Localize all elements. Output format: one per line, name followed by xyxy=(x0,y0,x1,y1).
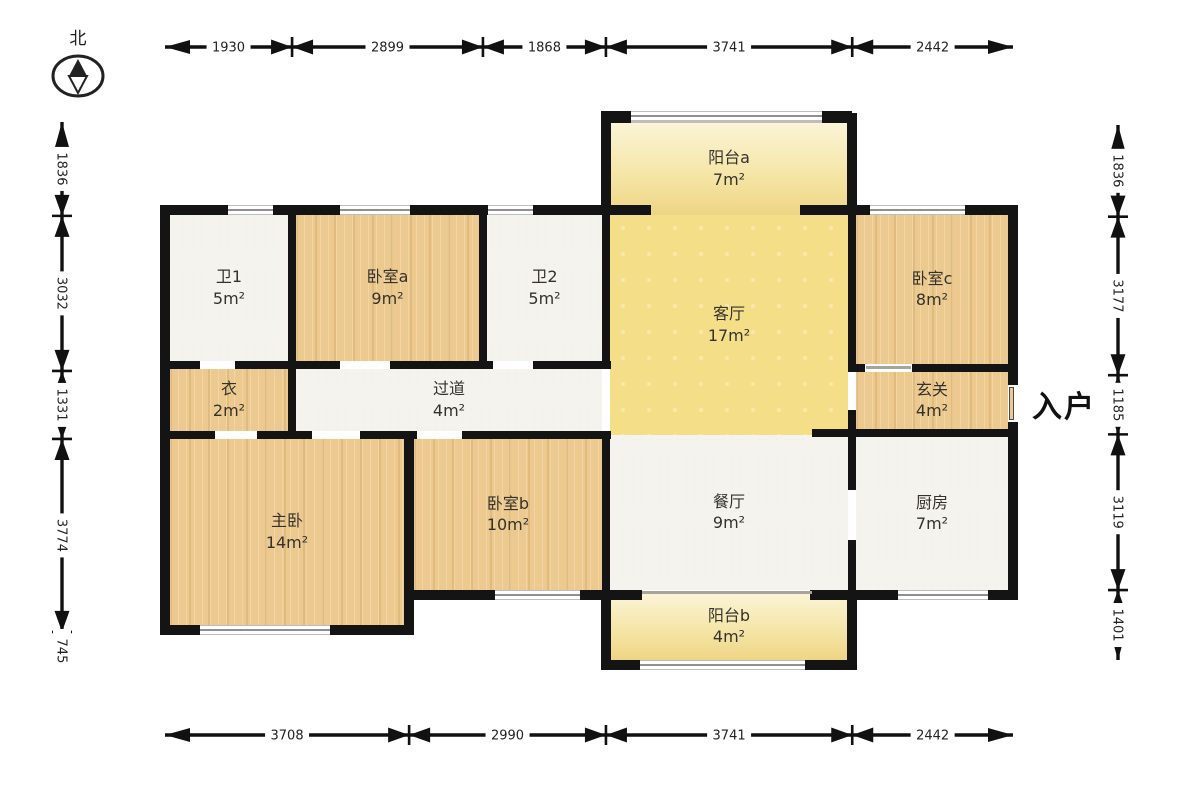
room-balcony-a: 阳台a7m² xyxy=(611,123,847,215)
wall xyxy=(601,111,631,123)
wall xyxy=(160,361,200,369)
room-name: 玄关 xyxy=(916,381,948,399)
dim-label: 1836 xyxy=(1110,154,1125,187)
compass: 北 xyxy=(43,24,115,112)
dim-label-bg xyxy=(486,726,530,744)
wall xyxy=(848,364,865,372)
dim-arrow xyxy=(165,40,190,54)
dim-bowtie xyxy=(852,40,873,55)
window xyxy=(870,205,965,215)
dim-bowtie xyxy=(606,728,627,743)
dim-bowtie xyxy=(55,371,70,392)
wall xyxy=(800,205,842,215)
dim-label-bg xyxy=(911,726,955,744)
dim-label: 1331 xyxy=(54,388,69,421)
dim-bowtie xyxy=(55,418,70,439)
room-name: 衣 xyxy=(221,380,237,398)
dim-label-bg xyxy=(366,38,410,56)
wall xyxy=(812,429,1018,437)
dim-label: 745 xyxy=(54,639,69,664)
window xyxy=(340,205,410,215)
dim-label: 2442 xyxy=(916,729,949,744)
dim-label-bg xyxy=(207,38,251,56)
dim-bowtie xyxy=(1111,590,1126,611)
dim-bowtie xyxy=(1111,375,1126,396)
dim-label: 1930 xyxy=(212,41,245,56)
dim-arrow xyxy=(988,40,1013,54)
room-name: 卫2 xyxy=(531,268,557,286)
dim-bowtie xyxy=(55,611,70,632)
window xyxy=(631,111,822,123)
dim-label-bg xyxy=(1109,274,1127,318)
dim-label-bg xyxy=(53,147,71,191)
entry-label: 入户 xyxy=(1032,382,1096,426)
dim-label-bg xyxy=(1109,149,1127,193)
dim-bowtie xyxy=(483,40,504,55)
dim-arrow xyxy=(1111,635,1125,660)
dim-bowtie xyxy=(1111,196,1126,217)
room-area: 10m² xyxy=(487,516,529,534)
dim-label: 3032 xyxy=(54,277,69,310)
dim-label: 1185 xyxy=(1110,388,1125,421)
dim-arrow xyxy=(55,645,69,670)
room-area: 4m² xyxy=(713,628,745,646)
room-name: 厨房 xyxy=(916,494,948,512)
dim-bowtie xyxy=(55,216,70,237)
wall xyxy=(602,590,642,600)
dim-label: 3741 xyxy=(713,41,746,56)
wall xyxy=(288,215,296,369)
wall xyxy=(1008,205,1018,385)
wall xyxy=(533,361,611,369)
dim-arrow xyxy=(988,728,1013,742)
wall xyxy=(912,364,1018,372)
room-closet: 衣2m² xyxy=(170,369,288,431)
room-name: 客厅 xyxy=(713,305,745,323)
room-name: 餐厅 xyxy=(713,493,745,511)
room-bedroom-b: 卧室b10m² xyxy=(414,439,602,590)
wall xyxy=(602,435,610,595)
wall xyxy=(390,361,493,369)
room-area: 9m² xyxy=(371,290,403,308)
dim-label-bg xyxy=(1109,490,1127,534)
wall xyxy=(479,215,487,369)
wall xyxy=(160,431,215,439)
dim-bowtie xyxy=(585,40,606,55)
dim-bowtie xyxy=(271,40,292,55)
floor-plan: 北 阳台a7m²卫15m²卧室a9m²卫25m²客厅17m²卧室c8m²衣2m²… xyxy=(0,0,1177,785)
window xyxy=(898,590,988,600)
dim-bowtie xyxy=(1111,569,1126,590)
room-name: 过道 xyxy=(433,380,465,398)
dim-label-bg xyxy=(707,38,751,56)
room-name: 卧室b xyxy=(487,495,529,513)
window xyxy=(488,205,533,215)
room-dining-room: 餐厅9m² xyxy=(610,435,848,590)
window xyxy=(228,205,273,215)
dim-label-bg xyxy=(911,38,955,56)
room-master-bedroom: 主卧14m² xyxy=(170,439,404,625)
room-bedroom-a: 卧室a9m² xyxy=(296,215,479,361)
dim-label-bg xyxy=(53,513,71,557)
dim-arrow xyxy=(1111,125,1125,150)
dim-label: 3708 xyxy=(271,729,304,744)
dim-bowtie xyxy=(606,40,627,55)
dim-bowtie xyxy=(388,728,409,743)
dim-label: 3119 xyxy=(1110,496,1125,529)
dim-label: 3774 xyxy=(54,519,69,552)
room-area: 4m² xyxy=(433,402,465,420)
room-area: 9m² xyxy=(713,514,745,532)
room-area: 8m² xyxy=(916,291,948,309)
wall xyxy=(602,215,610,368)
window xyxy=(495,590,580,600)
room-area: 7m² xyxy=(713,171,745,189)
compass-label: 北 xyxy=(70,29,87,49)
dim-arrow xyxy=(55,122,69,147)
wall xyxy=(404,431,414,595)
wall xyxy=(160,205,170,635)
dim-label: 2899 xyxy=(371,41,404,56)
dim-bowtie xyxy=(55,195,70,216)
dim-bowtie xyxy=(831,40,852,55)
dim-bowtie xyxy=(55,439,70,460)
dim-arrow xyxy=(165,728,190,742)
room-area: 14m² xyxy=(266,534,308,552)
dim-label: 2990 xyxy=(491,729,524,744)
entry-door-leaf xyxy=(1009,387,1014,420)
window xyxy=(640,660,805,670)
dim-bowtie xyxy=(292,40,313,55)
wall xyxy=(847,113,857,215)
wall xyxy=(848,410,856,490)
room-area: 5m² xyxy=(528,290,560,308)
room-name: 卧室c xyxy=(912,270,953,288)
wall xyxy=(847,590,857,670)
dim-bowtie xyxy=(831,728,852,743)
dim-label-bg xyxy=(1109,603,1127,647)
dim-label-bg xyxy=(53,383,71,427)
room-area: 17m² xyxy=(708,327,750,345)
room-bath-1: 卫15m² xyxy=(170,215,288,361)
dim-label-bg xyxy=(522,38,566,56)
dim-label: 3741 xyxy=(713,729,746,744)
window xyxy=(200,625,330,635)
dim-label-bg xyxy=(265,726,309,744)
sliding-door xyxy=(642,591,812,594)
room-balcony-b: 阳台b4m² xyxy=(611,593,847,660)
sliding-door xyxy=(866,366,911,369)
room-area: 7m² xyxy=(916,515,948,533)
wall xyxy=(235,361,340,369)
dim-bowtie xyxy=(852,728,873,743)
wall xyxy=(288,369,296,431)
room-bath-2: 卫25m² xyxy=(487,215,602,361)
wall xyxy=(822,111,852,123)
dim-label: 1401 xyxy=(1110,608,1125,641)
room-kitchen: 厨房7m² xyxy=(856,437,1008,590)
room-area: 4m² xyxy=(916,402,948,420)
room-name: 主卧 xyxy=(271,512,303,530)
dim-bowtie xyxy=(1111,413,1126,434)
wall xyxy=(810,590,852,600)
wall xyxy=(611,205,651,215)
dim-bowtie xyxy=(55,632,70,653)
dim-bowtie xyxy=(1111,434,1126,455)
room-name: 卧室a xyxy=(367,268,409,286)
room-name: 阳台b xyxy=(708,607,750,625)
dim-label: 3177 xyxy=(1110,279,1125,312)
room-area: 2m² xyxy=(213,402,245,420)
dim-bowtie xyxy=(1111,217,1126,238)
wall xyxy=(462,431,611,439)
dim-label: 1836 xyxy=(54,152,69,185)
dim-label: 2442 xyxy=(916,41,949,56)
wall xyxy=(601,113,611,215)
wall xyxy=(257,431,312,439)
dim-bowtie xyxy=(462,40,483,55)
dim-bowtie xyxy=(1111,354,1126,375)
room-name: 卫1 xyxy=(216,268,242,286)
room-hallway: 过道4m² xyxy=(296,369,602,431)
dim-bowtie xyxy=(585,728,606,743)
dim-bowtie xyxy=(55,350,70,371)
room-living-room: 客厅17m² xyxy=(610,215,848,435)
dim-label-bg xyxy=(53,271,71,315)
room-bedroom-c: 卧室c8m² xyxy=(856,215,1008,364)
wall xyxy=(601,590,611,670)
room-name: 阳台a xyxy=(708,149,750,167)
dim-label-bg xyxy=(707,726,751,744)
dim-label: 1868 xyxy=(528,41,561,56)
dim-bowtie xyxy=(409,728,430,743)
wall xyxy=(1008,422,1018,600)
dim-label-bg xyxy=(53,629,71,673)
room-area: 5m² xyxy=(213,290,245,308)
dim-label-bg xyxy=(1109,383,1127,427)
room-entry-hall: 玄关4m² xyxy=(856,372,1008,429)
wall xyxy=(848,215,856,368)
